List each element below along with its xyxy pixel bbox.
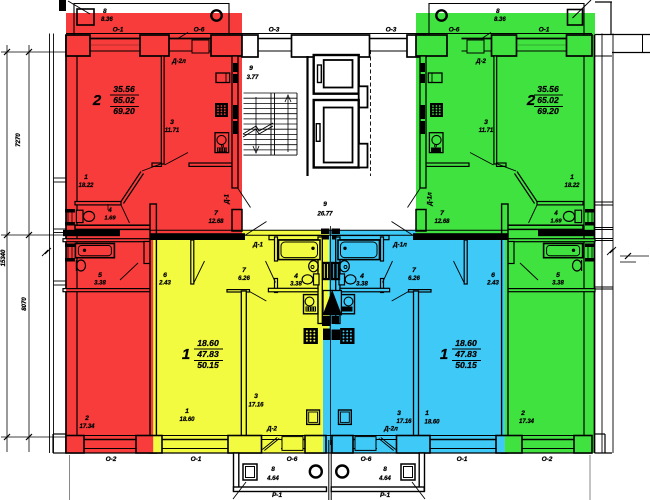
svg-text:15340: 15340 [1,249,7,266]
svg-text:О-6: О-6 [361,456,372,463]
svg-text:8070: 8070 [22,297,28,311]
svg-text:7270: 7270 [16,133,22,147]
svg-text:О-2: О-2 [106,456,117,463]
svg-text:О-6: О-6 [287,456,298,463]
svg-text:26.77: 26.77 [316,212,333,218]
svg-text:3.77: 3.77 [247,75,259,81]
svg-text:4.64: 4.64 [266,476,279,482]
svg-text:4.64: 4.64 [378,476,391,482]
svg-text:О-1: О-1 [457,456,468,463]
svg-text:8: 8 [383,466,387,473]
svg-text:9: 9 [323,201,327,208]
svg-text:9: 9 [249,65,253,72]
svg-text:Р-1: Р-1 [272,492,283,499]
svg-text:О-3: О-3 [386,27,397,34]
svg-text:О-3: О-3 [269,27,280,34]
svg-text:8: 8 [271,466,275,473]
svg-text:Р-1: Р-1 [380,492,391,499]
svg-text:О-2: О-2 [542,456,553,463]
svg-text:О-1: О-1 [191,456,202,463]
